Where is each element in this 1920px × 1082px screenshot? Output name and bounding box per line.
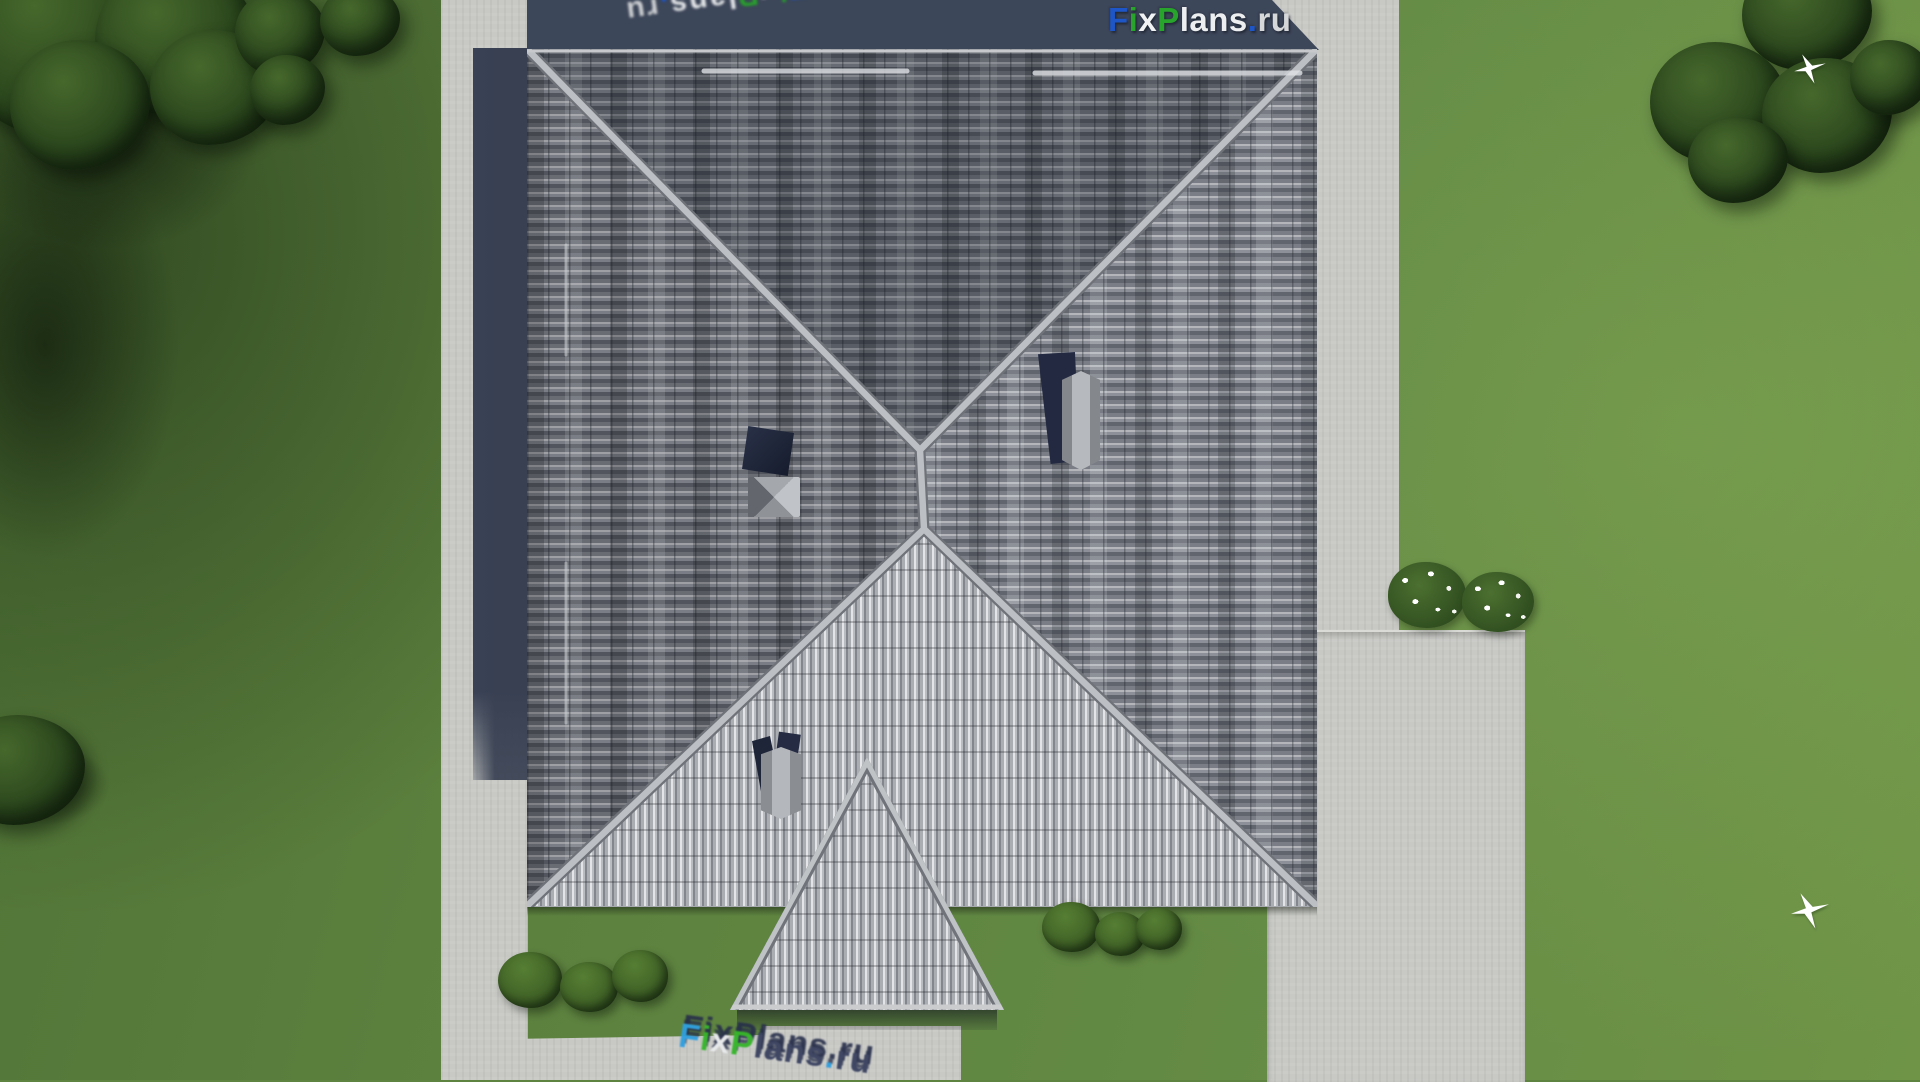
flower-bush — [1462, 572, 1534, 632]
roof-window — [742, 426, 794, 476]
bird-icon — [1788, 892, 1832, 930]
porch-eave-shadow — [737, 1008, 997, 1030]
logo-letter: u — [1271, 1, 1292, 38]
logo-letter: l — [1180, 1, 1190, 38]
bush — [1136, 908, 1182, 950]
logo-letter: r — [1257, 1, 1270, 38]
logo-letter: F — [1108, 1, 1129, 38]
bush — [498, 952, 562, 1008]
logo-letter: u — [623, 0, 648, 29]
house-roof — [527, 49, 1317, 907]
bird-icon — [1792, 52, 1828, 86]
logo-letter: a — [1189, 1, 1208, 38]
bush — [560, 962, 618, 1012]
chimney-cap — [1062, 371, 1100, 470]
logo-letter: i — [1129, 1, 1139, 38]
brand-logo: FixPlans.ru — [1108, 1, 1291, 39]
roof-vent-pyramid — [748, 477, 800, 517]
bush — [612, 950, 668, 1002]
logo-letter: P — [1157, 1, 1180, 38]
bush — [1042, 902, 1100, 952]
flower-bush — [1388, 562, 1466, 628]
logo-letter: s — [1229, 1, 1248, 38]
tree — [1850, 40, 1920, 115]
logo-letter: n — [1208, 1, 1229, 38]
logo-letter: . — [1248, 1, 1258, 38]
chimney-cap — [761, 747, 801, 819]
logo-letter: x — [1138, 1, 1157, 38]
house-shadow-west — [473, 48, 527, 780]
